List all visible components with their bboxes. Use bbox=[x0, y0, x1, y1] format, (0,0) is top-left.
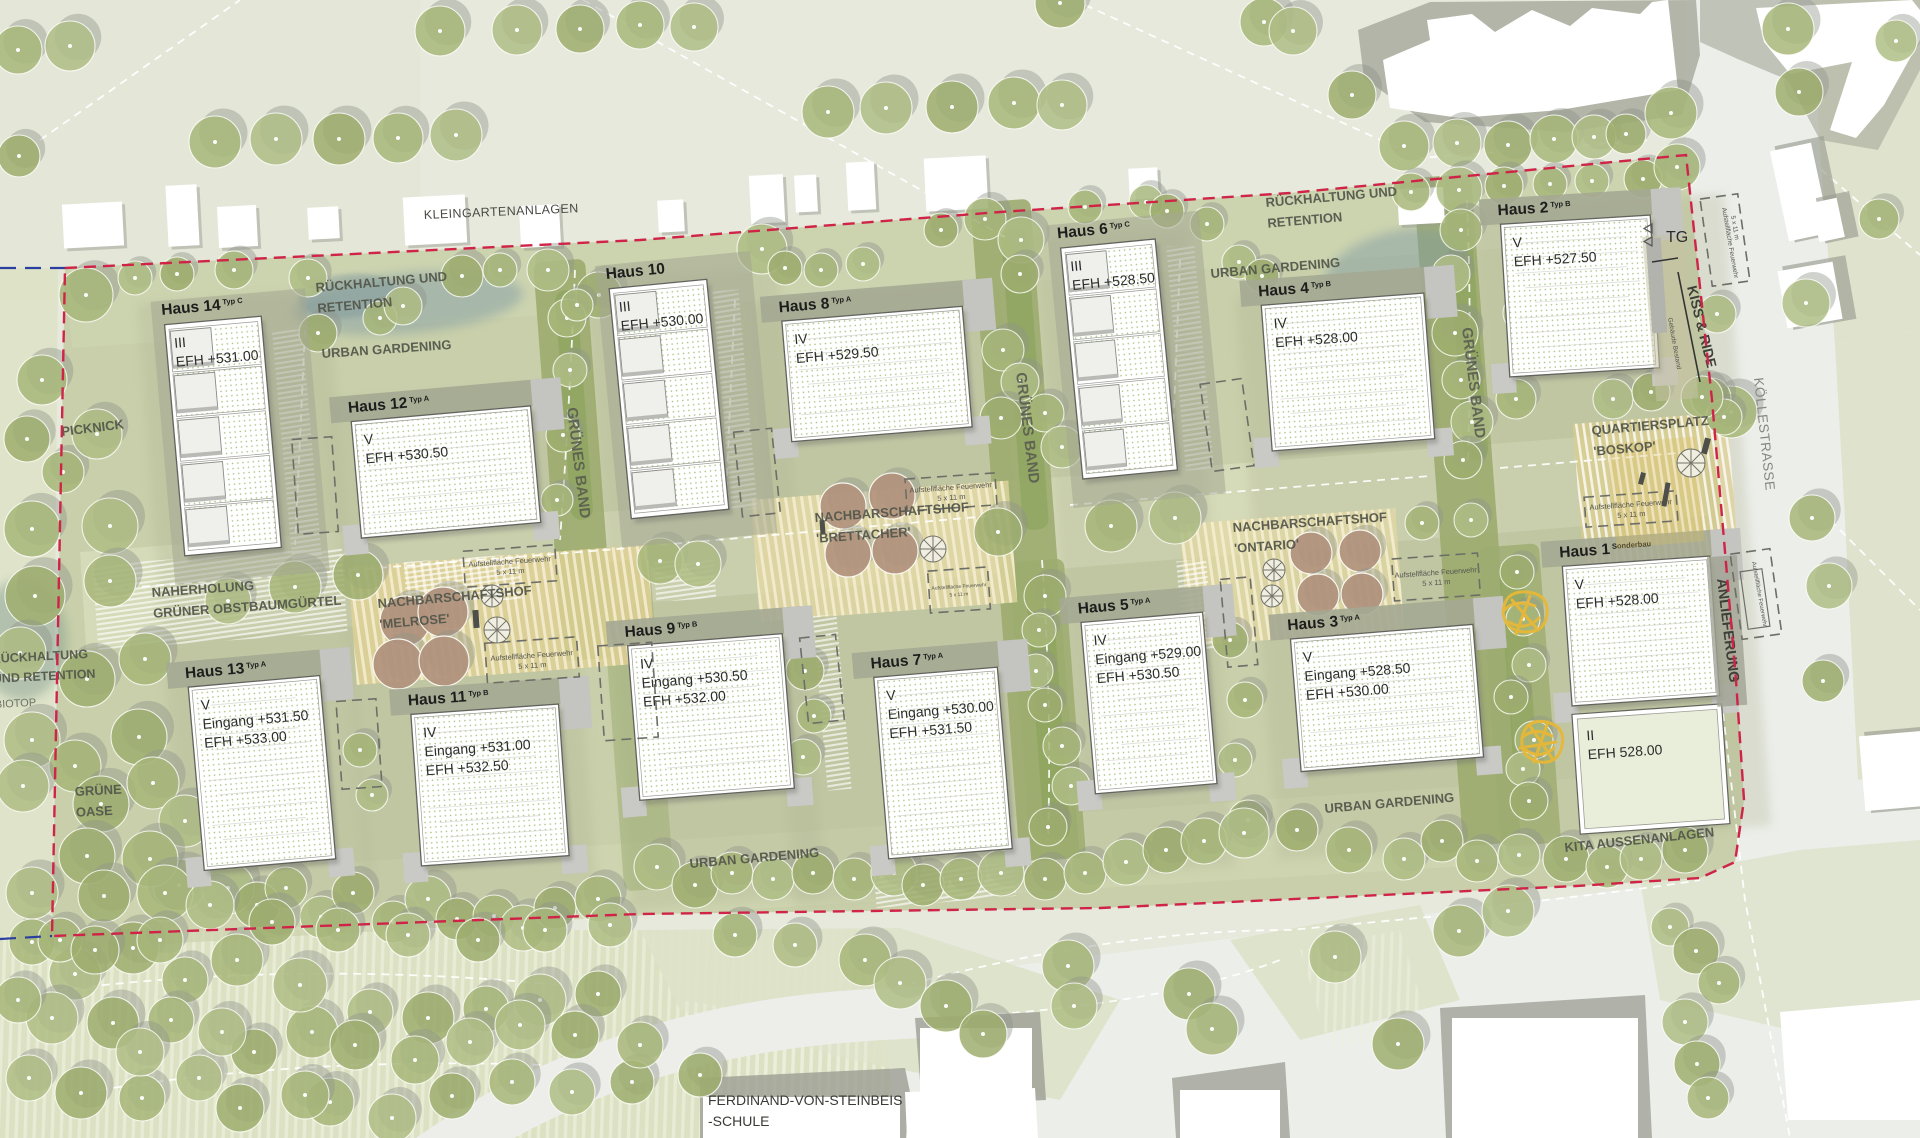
svg-text:FERDINAND-VON-STEINBEIS: FERDINAND-VON-STEINBEIS bbox=[708, 1092, 902, 1108]
svg-text:-SCHULE: -SCHULE bbox=[708, 1113, 769, 1129]
svg-text:IV: IV bbox=[1093, 631, 1108, 648]
svg-text:BIOTOP: BIOTOP bbox=[0, 697, 36, 711]
svg-text:TG: TG bbox=[1666, 229, 1688, 246]
svg-text:IV: IV bbox=[423, 724, 438, 741]
svg-text:IV: IV bbox=[1273, 314, 1288, 331]
svg-text:V: V bbox=[1574, 576, 1585, 593]
svg-text:II: II bbox=[1586, 727, 1595, 744]
svg-text:III: III bbox=[618, 298, 631, 315]
svg-text:V: V bbox=[1512, 234, 1523, 251]
svg-text:OASE: OASE bbox=[75, 803, 113, 820]
svg-text:III: III bbox=[1070, 257, 1083, 274]
svg-text:GRÜNE: GRÜNE bbox=[74, 782, 122, 799]
svg-text:III: III bbox=[174, 334, 187, 351]
svg-text:IV: IV bbox=[794, 330, 809, 347]
